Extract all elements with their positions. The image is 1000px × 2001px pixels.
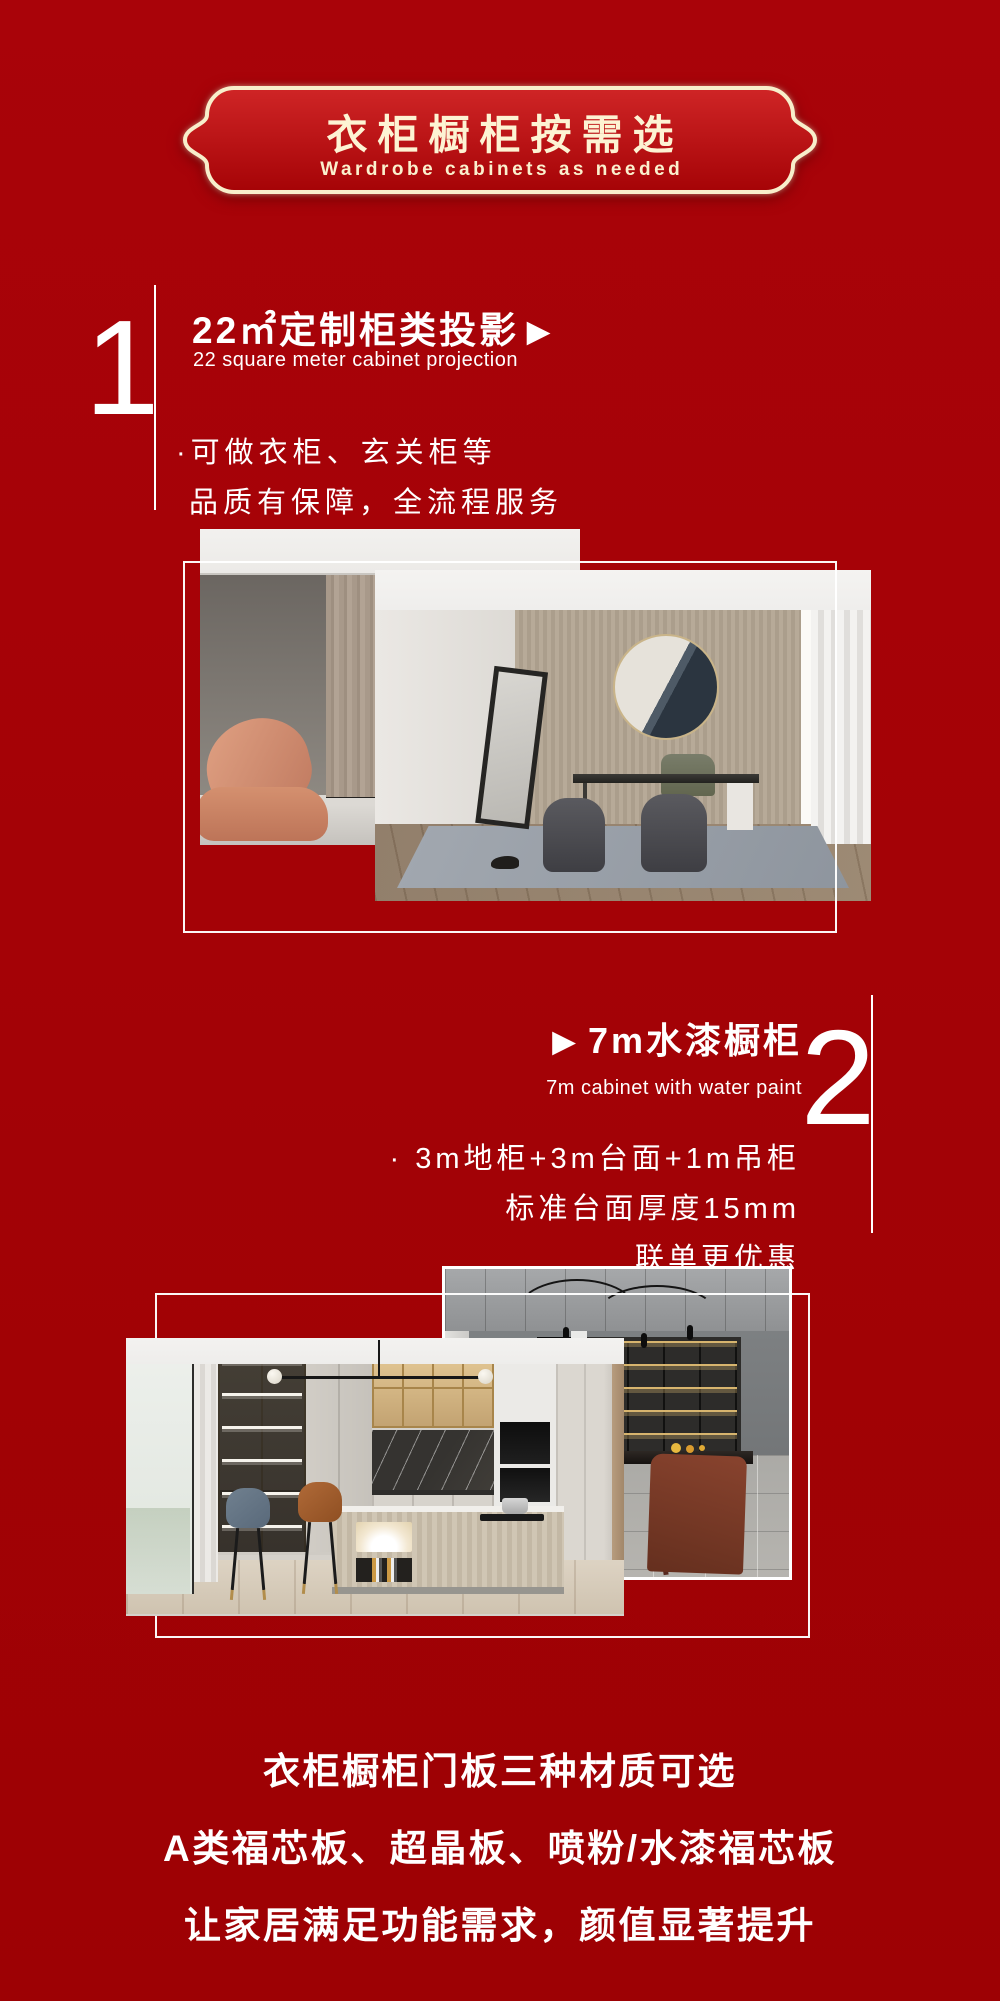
- books: [372, 1558, 402, 1582]
- section1-bullets: ·可做衣柜、玄关柜等 品质有保障，全流程服务: [176, 428, 563, 528]
- bar-stool-blue: [226, 1488, 270, 1528]
- island-lit-niche: [356, 1522, 412, 1552]
- header-badge: 衣柜橱柜按需选 Wardrobe cabinets as needed: [180, 83, 820, 197]
- section1-divider-line: [154, 285, 156, 510]
- stool-leg: [302, 1522, 311, 1594]
- island-book-niche: [356, 1558, 412, 1582]
- badge-subtitle: Wardrobe cabinets as needed: [180, 159, 820, 181]
- stool-leg: [230, 1528, 239, 1600]
- promo-poster: 衣柜橱柜按需选 Wardrobe cabinets as needed 1 22…: [0, 0, 1000, 2001]
- stool-seat: [226, 1488, 270, 1528]
- photo-kitchen: [126, 1338, 624, 1616]
- bar-stool-rust: [298, 1482, 342, 1522]
- kitchen-island: [332, 1506, 564, 1594]
- pendant-light: [274, 1376, 486, 1379]
- pendant-drop-rod: [378, 1340, 380, 1376]
- badge-title: 衣柜橱柜按需选: [180, 101, 820, 161]
- cooking-pot: [502, 1498, 528, 1514]
- section1-title: 22㎡定制柜类投影▶: [192, 300, 552, 354]
- collage1-outline-frame: [183, 561, 837, 933]
- bullet-line: ·可做衣柜、玄关柜等: [176, 428, 563, 478]
- arrow-right-icon: ▶: [527, 314, 552, 349]
- footer-line: 衣柜橱柜门板三种材质可选: [0, 1741, 1000, 1795]
- pendant-globe: [267, 1369, 282, 1384]
- section2-number: 2: [800, 1010, 876, 1145]
- bullet-line: 标准台面厚度15mm: [390, 1184, 800, 1234]
- section2-bullets: · 3m地柜+3m台面+1m吊柜 标准台面厚度15mm 联单更优惠: [390, 1134, 800, 1284]
- section2-title: ▶7m水漆橱柜: [546, 1012, 802, 1064]
- arrow-right-icon: ▶: [553, 1024, 578, 1059]
- section2-heading: ▶7m水漆橱柜 7m cabinet with water paint: [546, 1012, 802, 1100]
- bullet-line: · 3m地柜+3m台面+1m吊柜: [390, 1134, 800, 1184]
- stool-leg: [257, 1528, 266, 1600]
- footer-line: 让家居满足功能需求，颜值显著提升: [0, 1895, 1000, 1949]
- footer-line: A类福芯板、超晶板、喷粉/水漆福芯板: [0, 1818, 1000, 1872]
- stool-seat: [298, 1482, 342, 1522]
- gas-hob: [480, 1514, 544, 1521]
- section2-divider-line: [871, 995, 873, 1233]
- bullet-line: 品质有保障，全流程服务: [176, 478, 563, 528]
- section1-subtitle: 22 square meter cabinet projection: [193, 349, 518, 372]
- section1-number: 1: [84, 300, 160, 435]
- section2-subtitle: 7m cabinet with water paint: [546, 1077, 802, 1100]
- pendant-globe: [478, 1369, 493, 1384]
